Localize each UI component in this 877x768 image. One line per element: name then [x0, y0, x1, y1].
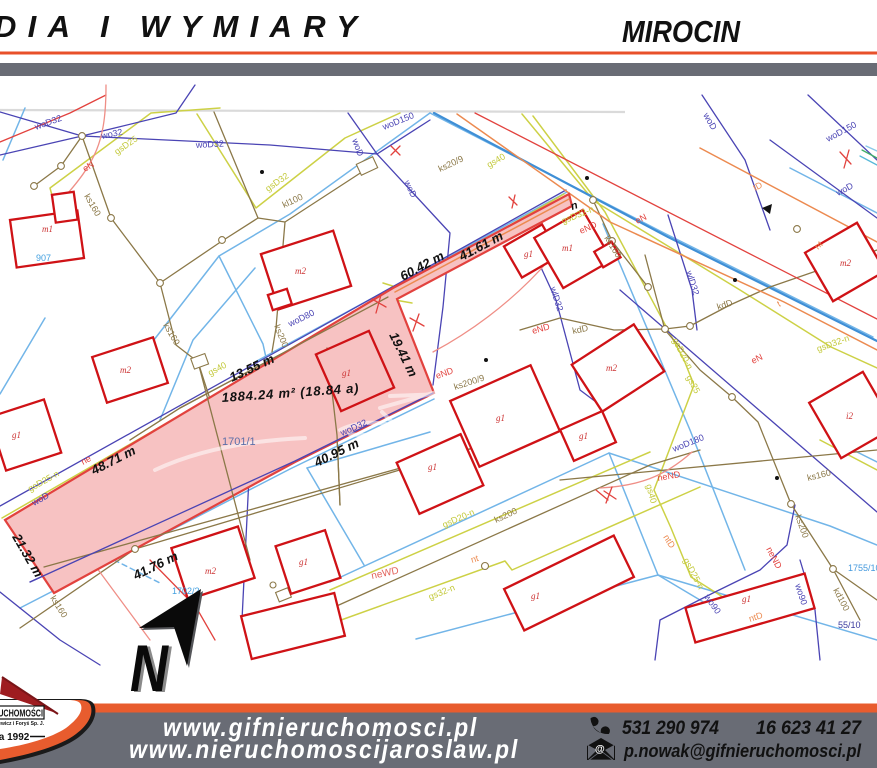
svg-text:m2: m2: [295, 266, 306, 276]
svg-text:g1: g1: [496, 413, 505, 423]
svg-text:g1: g1: [299, 557, 308, 567]
svg-text:woD32: woD32: [195, 139, 224, 151]
svg-text:1755/10: 1755/10: [848, 563, 877, 573]
svg-text:g1: g1: [579, 431, 588, 441]
svg-text:ia 1992: ia 1992: [0, 732, 30, 743]
svg-text:g1: g1: [742, 594, 751, 604]
svg-text:g1: g1: [12, 430, 21, 440]
svg-text:1701/1: 1701/1: [222, 436, 256, 448]
svg-text:m2: m2: [606, 363, 617, 373]
svg-text:MIROCIN: MIROCIN: [622, 14, 741, 49]
svg-text:g1: g1: [428, 462, 437, 472]
svg-text:907: 907: [36, 253, 51, 263]
svg-text:m2: m2: [840, 258, 851, 268]
svg-text:kiewicz i Foryś Sp. J.: kiewicz i Foryś Sp. J.: [0, 721, 45, 727]
svg-text:@: @: [595, 744, 605, 755]
svg-text:RUCHOMOŚCI: RUCHOMOŚCI: [0, 707, 43, 720]
svg-text:g1: g1: [531, 591, 540, 601]
svg-text:DIA I WYMIARY: DIA I WYMIARY: [0, 9, 366, 44]
svg-text:i2: i2: [846, 411, 854, 421]
svg-text:16 623 41 27: 16 623 41 27: [756, 718, 862, 739]
svg-text:g1: g1: [524, 249, 533, 259]
svg-text:m1: m1: [562, 243, 573, 253]
svg-text:N: N: [130, 631, 169, 705]
svg-text:p.nowak@gifnieruchomosci.pl: p.nowak@gifnieruchomosci.pl: [623, 741, 862, 761]
svg-text:www.nieruchomoscijaroslaw.pl: www.nieruchomoscijaroslaw.pl: [129, 734, 519, 764]
svg-text:m2: m2: [205, 566, 216, 576]
svg-text:m1: m1: [42, 224, 53, 234]
svg-text:55/10: 55/10: [838, 620, 861, 630]
svg-text:g1: g1: [342, 368, 351, 378]
svg-text:m2: m2: [120, 365, 131, 375]
svg-text:531 290 974: 531 290 974: [622, 718, 719, 739]
